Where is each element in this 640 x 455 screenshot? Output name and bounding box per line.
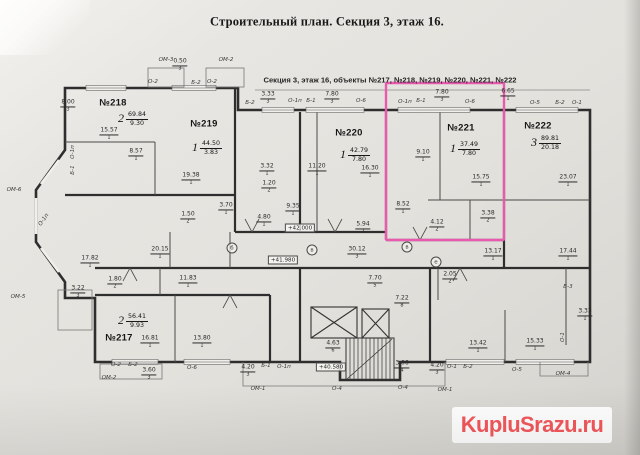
dimension-label: 4.122 — [429, 219, 444, 232]
dimension-label: 4.636 — [325, 340, 340, 353]
axis-bubble: е — [431, 257, 442, 268]
floorplan-scan: 15.5718.57119.3811.5023.7013.3211.2029.3… — [0, 0, 640, 455]
type-label: Б-2 — [128, 362, 137, 368]
type-label: ОМ-5 — [11, 294, 26, 300]
page-title: Строительный план. Секция 3, этаж 16. — [210, 15, 444, 30]
dimension-label: 8.003 — [60, 99, 75, 112]
type-label: О-1п — [70, 145, 76, 159]
axis-bubble: б — [227, 243, 238, 254]
dimension-label: 4.801 — [256, 214, 271, 227]
type-label: Б-2 — [245, 100, 254, 106]
type-label: Б-2 — [463, 364, 472, 370]
dimension-label: 1.202 — [261, 180, 276, 193]
type-label: О-6 — [187, 365, 197, 371]
dimension-label: 1.802 — [107, 276, 122, 289]
dimension-label: 2.052 — [442, 271, 457, 284]
dimension-label: 3.382 — [480, 210, 495, 223]
type-label: О-5 — [530, 100, 540, 106]
axis-bubble: в — [402, 242, 413, 253]
dimension-label: 3.701 — [218, 202, 233, 215]
apartment-area: 144.503.83 — [192, 140, 222, 156]
type-label: Б-2 — [191, 80, 200, 86]
type-label: ОМ-3 — [159, 57, 174, 63]
dimension-label: 17.821 — [80, 255, 99, 268]
type-label: О-6 — [465, 99, 475, 105]
dimension-label: 1.502 — [180, 211, 195, 224]
apartment-number: №221 — [447, 123, 474, 134]
elevation-mark: +41.980 — [268, 256, 298, 265]
dimension-label: 7.803 — [434, 89, 449, 102]
type-label: О-1 — [447, 364, 457, 370]
dimension-label: 15.751 — [471, 174, 490, 187]
axis-bubble: в — [307, 245, 318, 256]
dimension-label: 30.123 — [347, 246, 366, 259]
type-label: Б-1 — [70, 165, 76, 174]
apartment-number: №218 — [99, 98, 126, 109]
dimension-label: 8.521 — [395, 201, 410, 214]
type-label: Б-1 — [306, 98, 315, 104]
dimension-label: 15.331 — [525, 338, 544, 351]
type-label: О-1п — [277, 364, 291, 370]
dimension-label: 13.801 — [192, 335, 211, 348]
apartment-area: 137.497.80 — [450, 141, 480, 157]
dimension-label: 5.942 — [355, 221, 370, 234]
type-label: Б-3 — [563, 284, 572, 290]
type-label: О-2 — [148, 79, 158, 85]
dimension-label: 3.064 — [394, 360, 409, 373]
type-label: О-1 — [560, 332, 566, 342]
dimension-label: 9.101 — [415, 149, 430, 162]
type-label: О-1п — [398, 99, 412, 105]
dimension-label: 4.203 — [429, 362, 444, 375]
type-label: ОМ-6 — [7, 187, 22, 193]
apartment-area: 256.419.93 — [118, 313, 148, 329]
scan-bottom-shade — [0, 385, 640, 455]
elevation-mark: +42.000 — [285, 224, 315, 233]
type-label: О-5 — [512, 367, 522, 373]
apartment-area: 389.8120.18 — [531, 135, 561, 151]
apartment-number: №219 — [190, 119, 217, 130]
dimension-label: 9.351 — [285, 203, 300, 216]
dimension-label: 7.803 — [324, 91, 339, 104]
dimension-label: 23.071 — [558, 174, 577, 187]
dimension-label: 13.171 — [483, 248, 502, 261]
dimension-label: 3.331 — [577, 308, 592, 321]
dimension-label: 16.301 — [360, 165, 379, 178]
dimension-label: 11.201 — [307, 163, 326, 176]
dimension-label: 16.811 — [140, 335, 159, 348]
type-label: О-1п — [38, 213, 51, 228]
apartment-number: №220 — [335, 128, 362, 139]
dimension-label: 19.381 — [181, 172, 200, 185]
dimension-label: 3.603 — [141, 367, 156, 380]
apartment-area: 142.797.80 — [340, 147, 370, 163]
dimension-label: 3.223 — [70, 285, 85, 298]
type-label: О-2 — [111, 362, 121, 368]
dimension-label: 11.831 — [178, 275, 197, 288]
dimension-label: 0.503 — [172, 58, 187, 71]
dimension-label: 4.203 — [240, 364, 255, 377]
type-label: О-1 — [572, 100, 582, 106]
plan-subtitle: Секция 3, этаж 16, объекты №217, №218, №… — [263, 76, 516, 85]
elevation-mark: +40.580 — [316, 363, 346, 372]
type-label: ОМ-2 — [219, 57, 234, 63]
type-label: Б-1 — [261, 363, 270, 369]
type-label: ОМ-2 — [102, 375, 117, 381]
dimension-label: 3.333 — [260, 91, 275, 104]
dimension-label: 7.705 — [367, 275, 382, 288]
dimension-label: 20.151 — [150, 246, 169, 259]
dimension-label: 8.571 — [128, 148, 143, 161]
dimension-label: 15.571 — [99, 127, 118, 140]
apartment-number: №222 — [524, 121, 551, 132]
apartment-area: 269.849.30 — [118, 111, 148, 127]
type-label: О-2 — [207, 79, 217, 85]
dimension-label: 6.651 — [500, 88, 515, 101]
apartment-number: №217 — [105, 333, 132, 344]
dimension-label: 17.441 — [558, 248, 577, 261]
type-label: О-6 — [356, 98, 366, 104]
type-label: О-1п — [288, 98, 302, 104]
type-label: ОМ-4 — [556, 371, 571, 377]
dimension-label: 3.321 — [259, 163, 274, 176]
dimension-label: 13.421 — [468, 340, 487, 353]
type-label: Б-2 — [555, 100, 564, 106]
dimension-label: 7.228 — [394, 295, 409, 308]
type-label: Б-1 — [416, 98, 425, 104]
